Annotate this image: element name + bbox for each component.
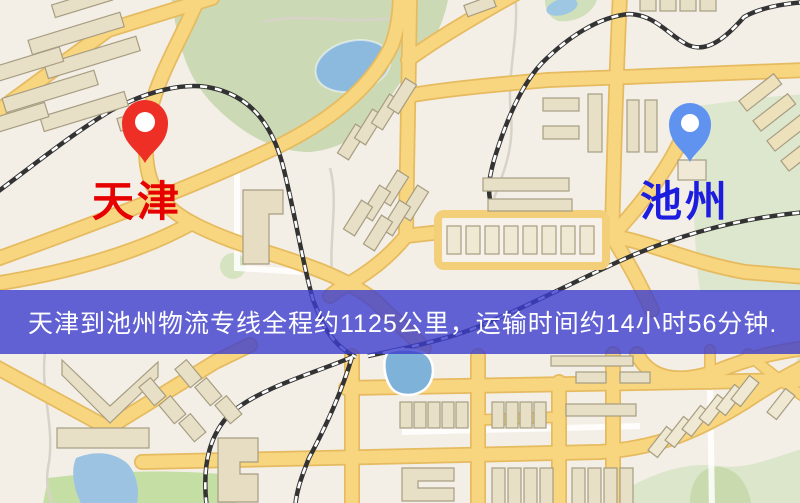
- logistics-map: 天津 池州 天津到池州物流专线全程约1125公里，运输时间约14小时56分钟.: [0, 0, 800, 503]
- map-image: [0, 0, 800, 503]
- origin-pin-hole: [135, 112, 155, 132]
- pond: [384, 349, 433, 395]
- banner-text: 天津到池州物流专线全程约1125公里，运输时间约14小时56分钟.: [28, 304, 777, 340]
- destination-label: 池州: [640, 181, 730, 223]
- origin-label: 天津: [92, 181, 182, 223]
- destination-pin-hole: [681, 114, 699, 132]
- info-banner: 天津到池州物流专线全程约1125公里，运输时间约14小时56分钟.: [0, 290, 800, 354]
